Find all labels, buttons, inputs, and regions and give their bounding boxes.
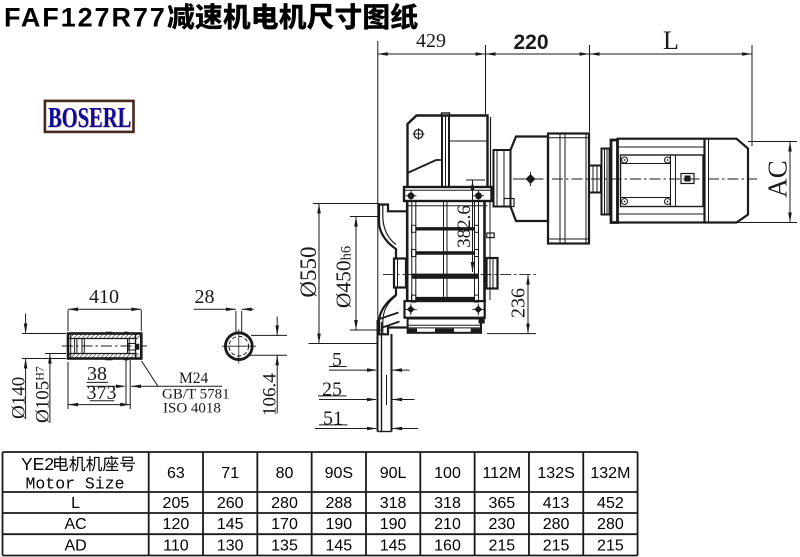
- svg-text:280: 280: [543, 516, 570, 533]
- svg-text:190: 190: [325, 516, 352, 533]
- svg-text:25: 25: [322, 378, 342, 400]
- svg-text:215: 215: [488, 537, 515, 554]
- svg-text:413: 413: [543, 495, 570, 512]
- svg-text:ISO 4018: ISO 4018: [163, 401, 221, 417]
- svg-text:80: 80: [276, 465, 294, 482]
- svg-text:145: 145: [325, 537, 352, 554]
- svg-text:120: 120: [163, 516, 190, 533]
- svg-text:132S: 132S: [537, 465, 574, 482]
- svg-text:260: 260: [217, 495, 244, 512]
- svg-text:205: 205: [163, 495, 190, 512]
- svg-text:230: 230: [488, 516, 515, 533]
- svg-text:280: 280: [597, 516, 624, 533]
- svg-text:106.4: 106.4: [260, 373, 281, 416]
- svg-text:215: 215: [543, 537, 570, 554]
- svg-text:452: 452: [597, 495, 624, 512]
- svg-text:215: 215: [597, 537, 624, 554]
- svg-text:170: 170: [271, 516, 298, 533]
- svg-text:318: 318: [434, 495, 461, 512]
- svg-text:100: 100: [434, 465, 461, 482]
- svg-text:M24: M24: [179, 370, 209, 387]
- svg-text:280: 280: [271, 495, 298, 512]
- svg-text:132M: 132M: [590, 465, 630, 482]
- svg-text:410: 410: [89, 286, 119, 308]
- svg-text:Ø140: Ø140: [9, 377, 30, 419]
- svg-text:365: 365: [488, 495, 515, 512]
- svg-text:BOSERL: BOSERL: [48, 103, 131, 134]
- svg-text:190: 190: [380, 516, 407, 533]
- svg-text:AC: AC: [64, 516, 86, 533]
- svg-text:90L: 90L: [380, 465, 407, 482]
- svg-text:220: 220: [513, 31, 548, 54]
- svg-text:28: 28: [195, 286, 215, 308]
- svg-text:Ø550: Ø550: [296, 246, 321, 297]
- svg-text:Motor Size: Motor Size: [25, 475, 124, 494]
- svg-text:FAF127R77: FAF127R77: [4, 2, 167, 32]
- svg-text:145: 145: [380, 537, 407, 554]
- svg-text:429: 429: [416, 30, 446, 52]
- svg-text:135: 135: [271, 537, 298, 554]
- svg-text:130: 130: [217, 537, 244, 554]
- svg-text:L: L: [663, 26, 679, 55]
- svg-text:5: 5: [332, 349, 342, 371]
- svg-text:382.6: 382.6: [454, 205, 475, 248]
- svg-text:YE2: YE2: [21, 454, 54, 474]
- svg-text:112M: 112M: [482, 465, 521, 482]
- svg-text:71: 71: [221, 465, 239, 482]
- svg-text:288: 288: [325, 495, 352, 512]
- svg-text:AD: AD: [64, 537, 86, 554]
- svg-text:160: 160: [434, 537, 461, 554]
- svg-text:110: 110: [163, 537, 189, 554]
- svg-text:236: 236: [508, 288, 530, 318]
- svg-text:Ø450h6: Ø450h6: [332, 246, 356, 308]
- svg-text:90S: 90S: [325, 465, 353, 482]
- svg-text:AC: AC: [763, 160, 793, 198]
- svg-text:145: 145: [217, 516, 244, 533]
- svg-text:318: 318: [380, 495, 407, 512]
- svg-text:63: 63: [167, 465, 185, 482]
- svg-text:L: L: [71, 495, 80, 512]
- svg-text:51: 51: [323, 407, 343, 429]
- svg-text:210: 210: [434, 516, 461, 533]
